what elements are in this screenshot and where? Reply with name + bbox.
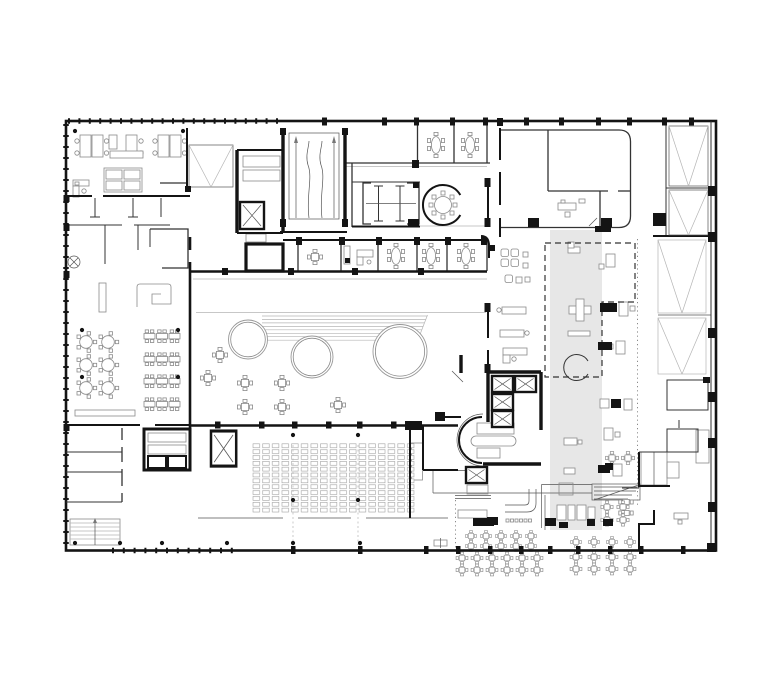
table-2-seat-icon: [619, 510, 633, 515]
shaft-room: [246, 244, 283, 271]
gallery-shaded-strip: [550, 230, 602, 530]
auditorium-seat-grid: [252, 443, 416, 513]
floor-plan-drawing: [0, 0, 780, 680]
low-table-icon: [110, 151, 143, 158]
elevator-icon: [515, 376, 536, 392]
elevator-icon: [211, 431, 236, 466]
elevator-icon: [492, 376, 513, 392]
floor-plan-page: Architectural ground floor plan drawing,…: [0, 0, 780, 680]
elevator-icon: [240, 202, 264, 229]
cafe-counter: [458, 510, 487, 518]
elevator-icon: [466, 467, 487, 483]
elevator-icon: [492, 394, 513, 410]
elevator-icon: [492, 411, 513, 427]
